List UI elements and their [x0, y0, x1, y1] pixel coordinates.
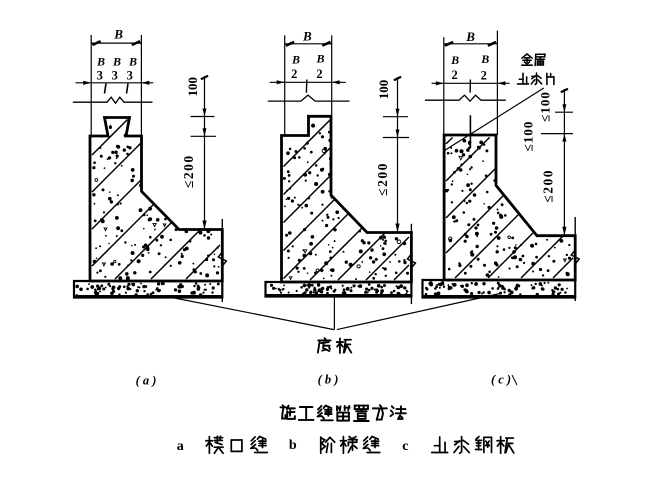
svg-text:2: 2: [451, 68, 457, 82]
svg-text:B: B: [315, 52, 324, 66]
svg-text:≤200: ≤200: [181, 154, 196, 188]
svg-text:B: B: [302, 28, 312, 43]
svg-text:c: c: [402, 439, 408, 454]
svg-text:3: 3: [97, 68, 103, 82]
svg-text:3: 3: [127, 68, 133, 82]
svg-text:B: B: [291, 52, 300, 66]
svg-text:≤100: ≤100: [537, 91, 552, 122]
svg-text:B: B: [128, 54, 137, 68]
svg-text:≤200: ≤200: [375, 162, 390, 196]
svg-text:( b ): ( b ): [318, 372, 339, 386]
svg-text:B: B: [450, 53, 459, 67]
svg-text:100: 100: [185, 77, 200, 97]
svg-text:3: 3: [112, 68, 118, 82]
svg-text:B: B: [480, 52, 489, 66]
svg-text:B: B: [96, 54, 105, 68]
svg-text:2: 2: [291, 67, 297, 81]
svg-text:b: b: [289, 438, 297, 453]
svg-text:2: 2: [316, 67, 322, 81]
svg-text:100: 100: [376, 80, 391, 100]
svg-text:a: a: [177, 439, 184, 454]
svg-text:B: B: [112, 54, 121, 68]
svg-text:2: 2: [481, 69, 487, 83]
svg-text:( a ): ( a ): [136, 373, 157, 387]
svg-text:B: B: [113, 26, 123, 41]
svg-text:≤200: ≤200: [541, 169, 556, 203]
svg-text:≤100: ≤100: [520, 121, 535, 152]
svg-text:B: B: [465, 29, 475, 44]
svg-text:( c ): ( c ): [491, 372, 511, 386]
